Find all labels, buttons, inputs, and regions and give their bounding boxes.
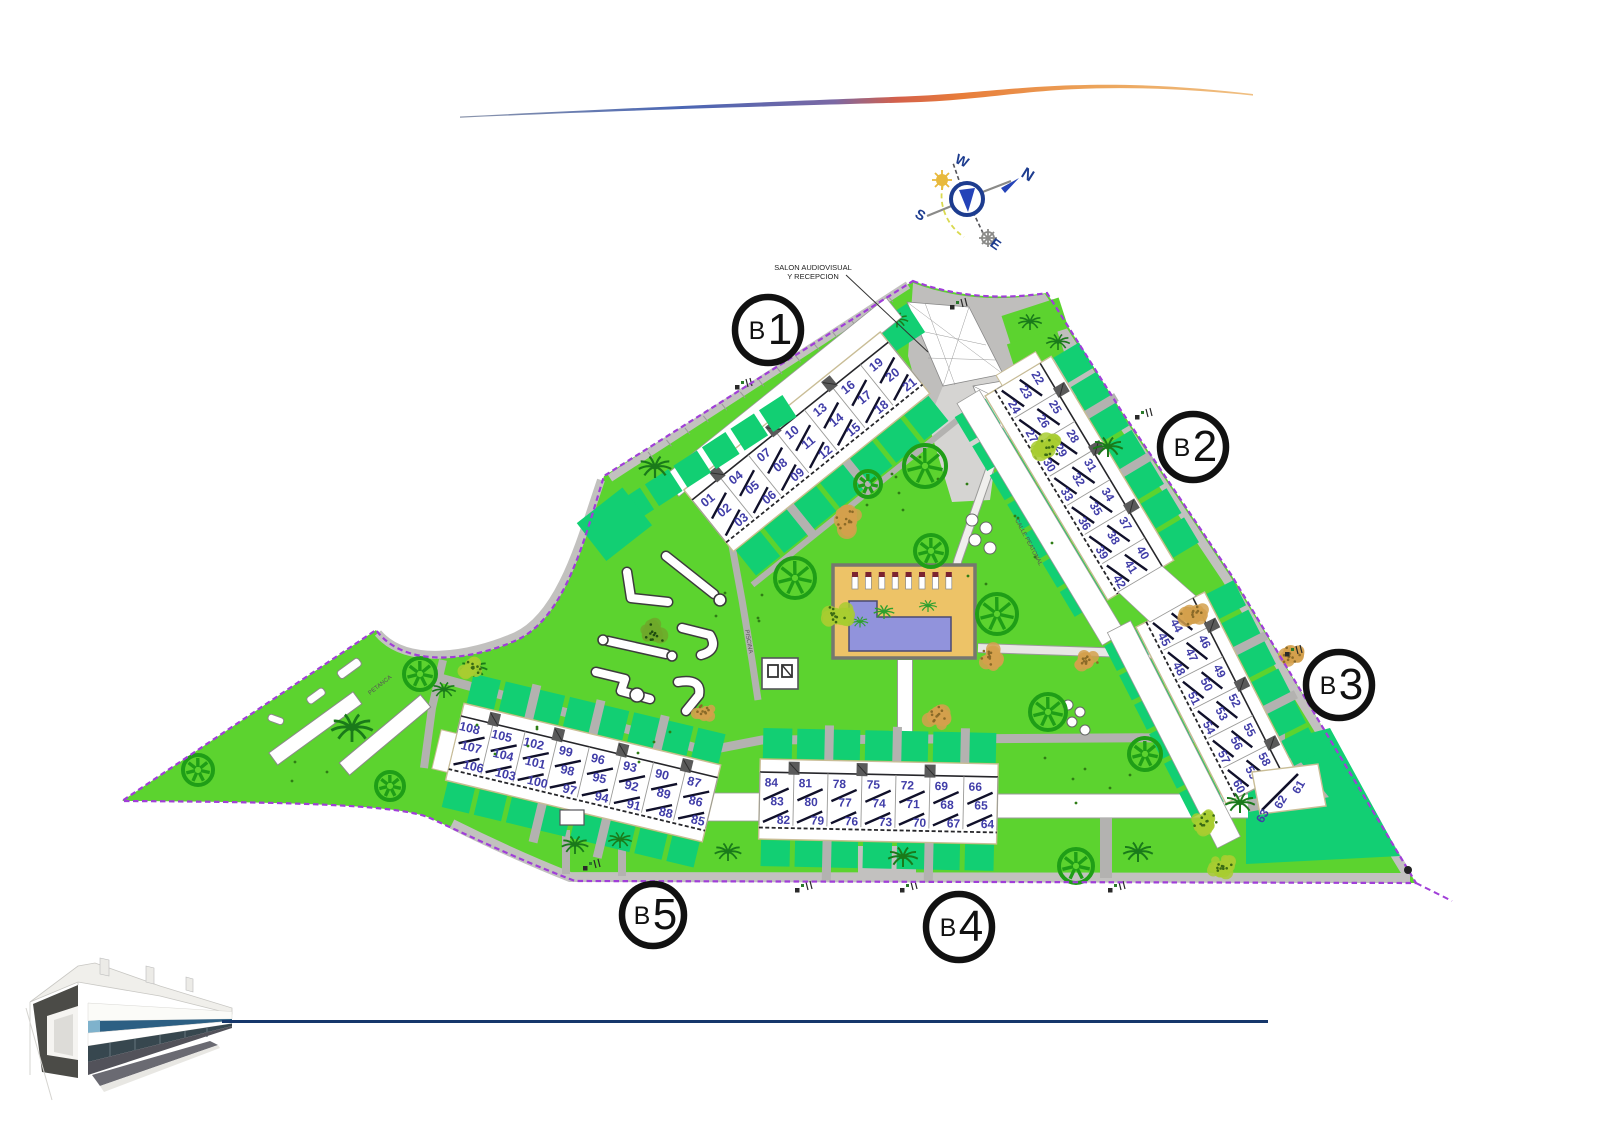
svg-text:65: 65	[974, 798, 988, 812]
svg-text:B: B	[634, 902, 651, 930]
svg-text:77: 77	[838, 796, 852, 810]
svg-text:81: 81	[799, 776, 813, 790]
svg-text:B: B	[1320, 672, 1337, 700]
svg-text:74: 74	[872, 796, 886, 810]
svg-text:66: 66	[969, 780, 983, 794]
svg-text:1: 1	[768, 305, 792, 354]
svg-text:5: 5	[653, 890, 677, 939]
svg-text:70: 70	[913, 816, 927, 830]
svg-text:71: 71	[906, 797, 920, 811]
svg-text:B: B	[749, 317, 766, 345]
svg-text:4: 4	[959, 902, 983, 951]
svg-text:B: B	[1174, 434, 1191, 462]
svg-text:78: 78	[833, 777, 847, 791]
svg-text:73: 73	[879, 815, 893, 829]
svg-text:82: 82	[777, 813, 791, 827]
svg-text:75: 75	[867, 778, 881, 792]
svg-text:Y RECEPCION: Y RECEPCION	[787, 272, 839, 281]
svg-text:3: 3	[1339, 660, 1363, 709]
svg-text:67: 67	[947, 816, 961, 830]
svg-text:68: 68	[940, 798, 954, 812]
svg-text:SALON AUDIOVISUAL: SALON AUDIOVISUAL	[774, 263, 852, 272]
svg-text:83: 83	[770, 794, 784, 808]
svg-text:79: 79	[811, 813, 825, 827]
svg-text:69: 69	[935, 779, 949, 793]
svg-text:64: 64	[981, 817, 995, 831]
svg-text:80: 80	[804, 795, 818, 809]
svg-text:2: 2	[1193, 422, 1217, 471]
svg-text:72: 72	[901, 778, 915, 792]
svg-text:84: 84	[765, 775, 779, 789]
svg-text:76: 76	[845, 814, 859, 828]
svg-text:B: B	[940, 914, 957, 942]
